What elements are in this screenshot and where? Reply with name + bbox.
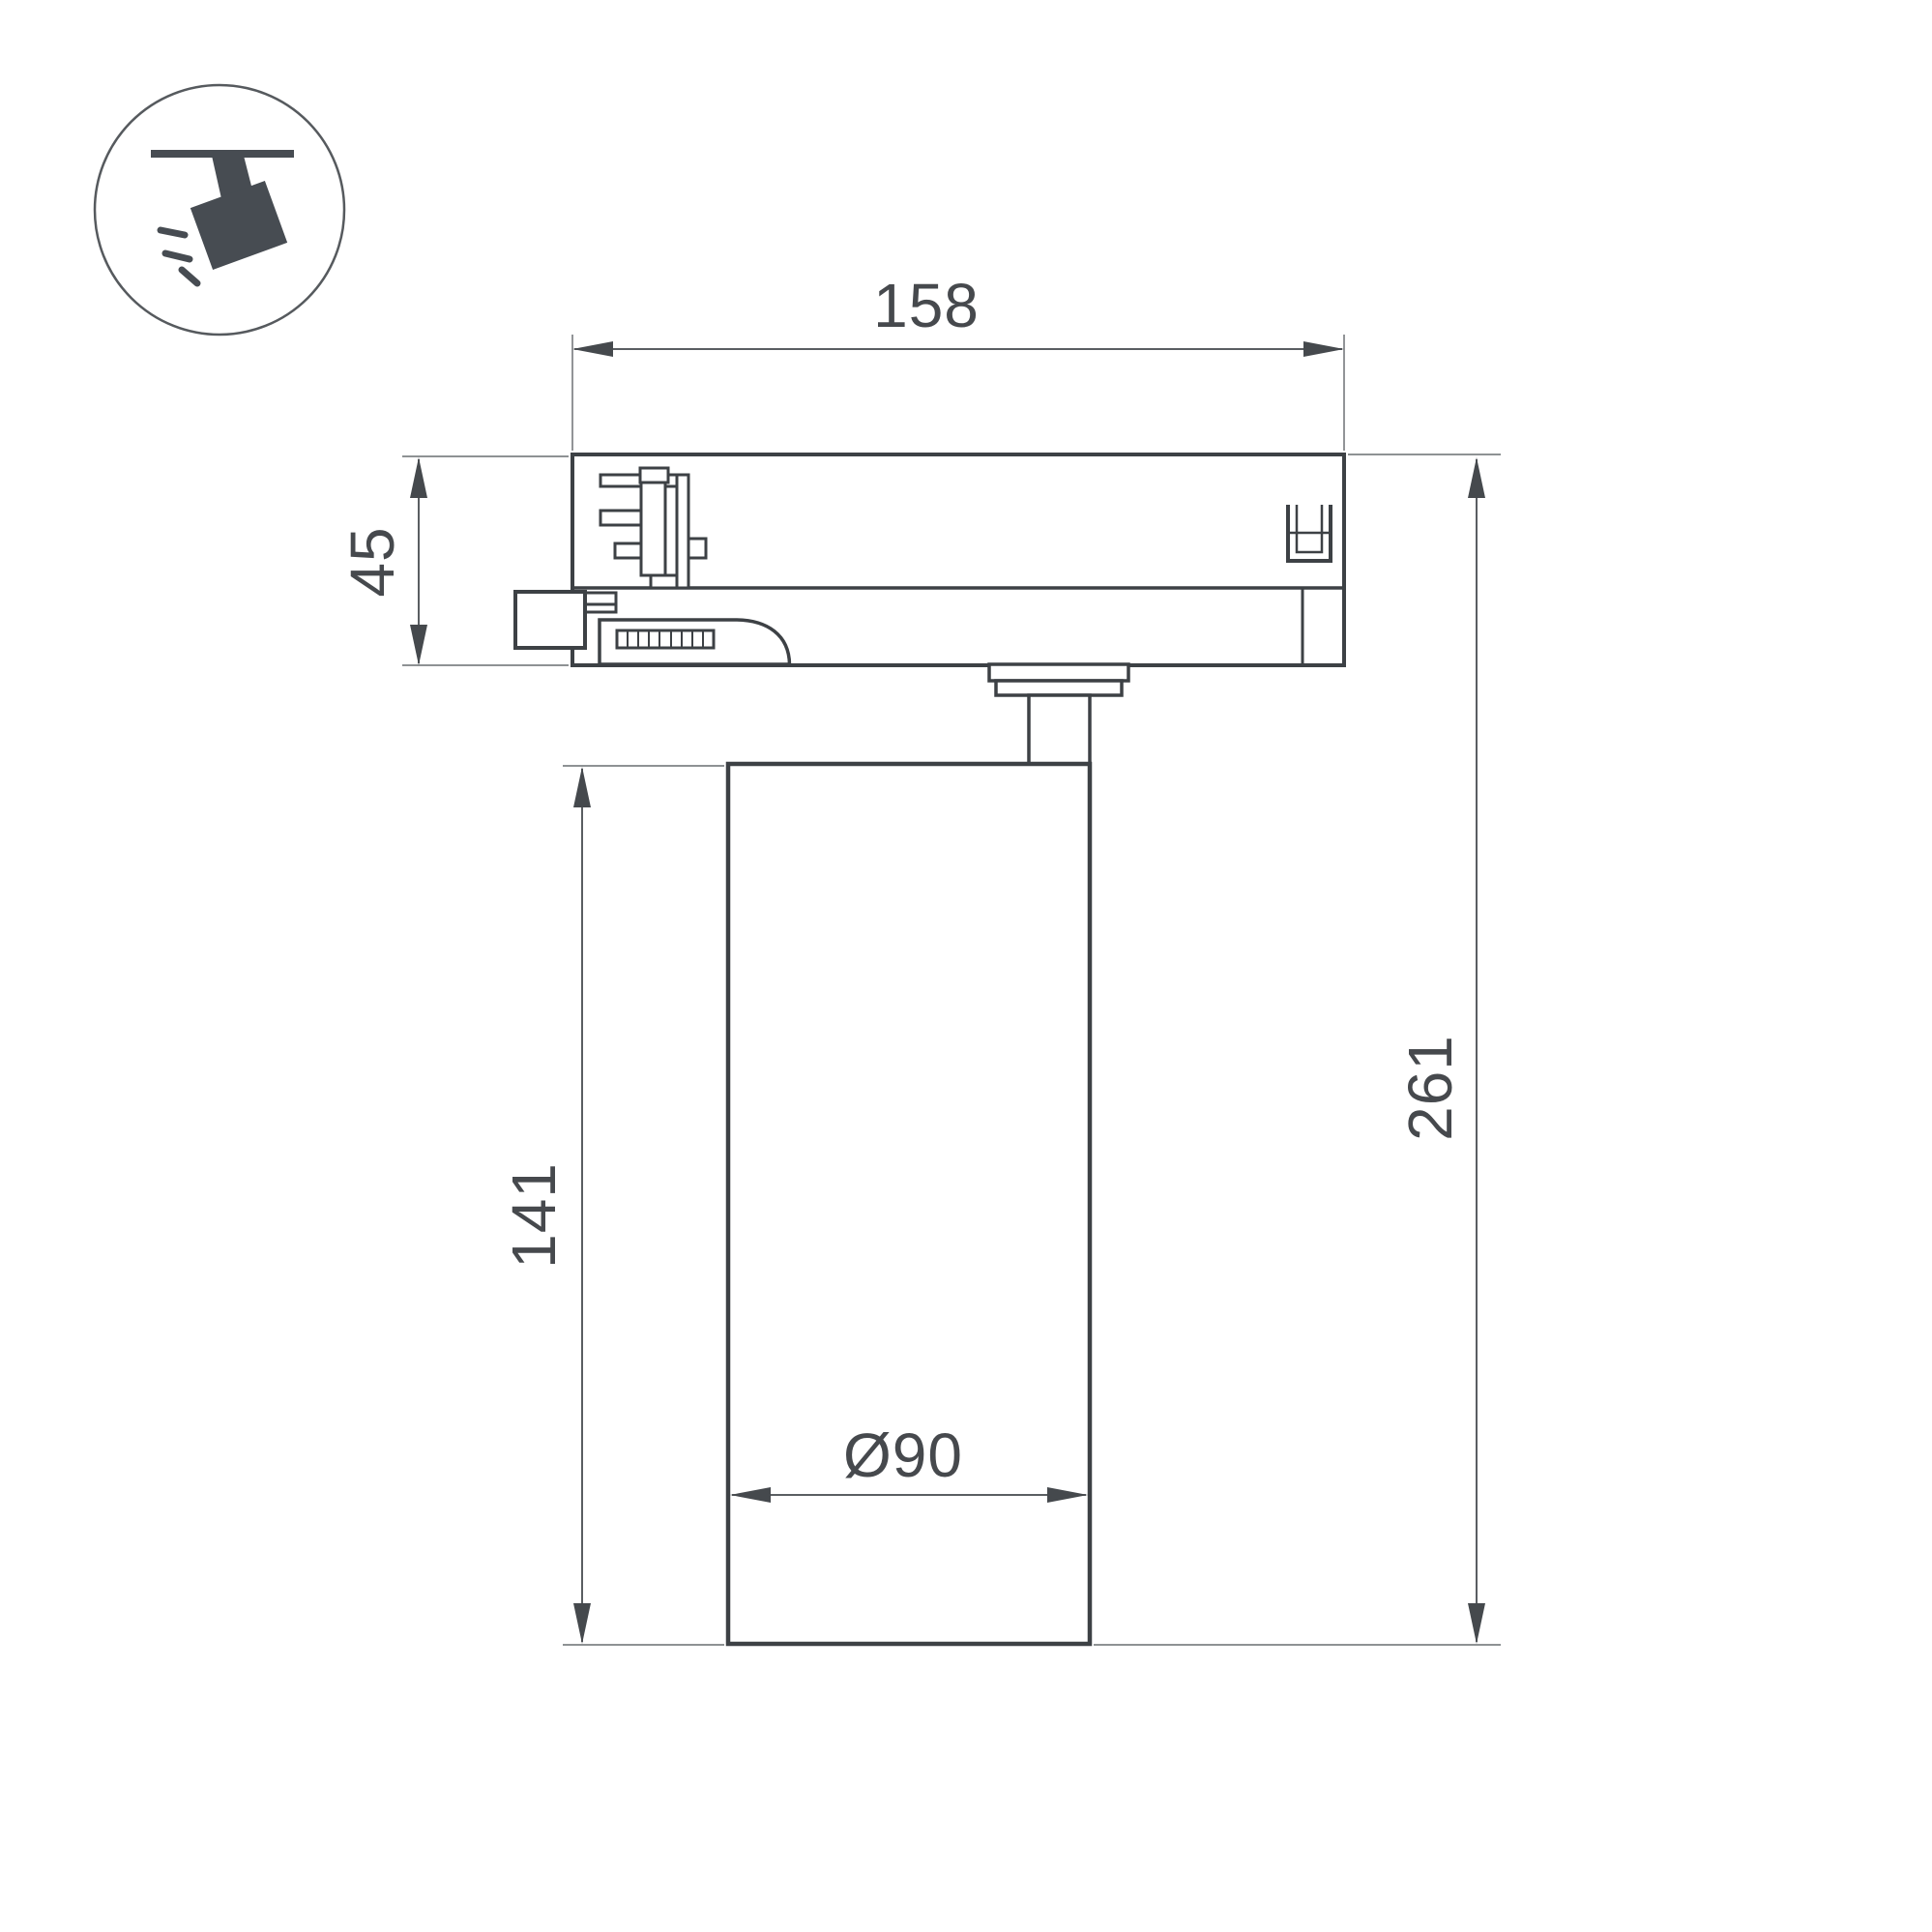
- arrowhead-left: [572, 341, 613, 357]
- flange-lower: [996, 681, 1122, 695]
- latch-detail: [585, 593, 616, 612]
- arrowhead-up: [410, 457, 427, 498]
- technical-drawing: 158 45 141 261 Ø90: [0, 0, 1932, 1932]
- product-icon: [95, 85, 344, 335]
- dim-label-adapter-width: 158: [873, 271, 980, 340]
- track-adapter-drawing: [515, 454, 1344, 665]
- flange-upper: [989, 664, 1128, 681]
- arrowhead-up: [1468, 457, 1485, 498]
- dim-label-total-height: 261: [1395, 1035, 1465, 1141]
- dimension-141: 141: [499, 766, 724, 1645]
- technical-drawing-page: 158 45 141 261 Ø90: [0, 0, 1932, 1932]
- stem: [1029, 695, 1090, 765]
- dim-label-body-height: 141: [499, 1162, 569, 1269]
- cylinder-body: [728, 764, 1090, 1644]
- arrowhead-up: [573, 767, 591, 807]
- dim-label-body-diameter: Ø90: [843, 1420, 963, 1490]
- arrowhead-right: [1303, 341, 1344, 357]
- lever-housing: [600, 620, 790, 664]
- arrowhead-down: [410, 625, 427, 665]
- side-knob: [515, 592, 585, 648]
- arrowhead-down: [1468, 1603, 1485, 1644]
- arrowhead-down: [573, 1603, 591, 1644]
- dim-label-adapter-height: 45: [337, 526, 407, 597]
- dimension-158: 158: [572, 271, 1344, 451]
- ribbed-dial: [617, 630, 714, 648]
